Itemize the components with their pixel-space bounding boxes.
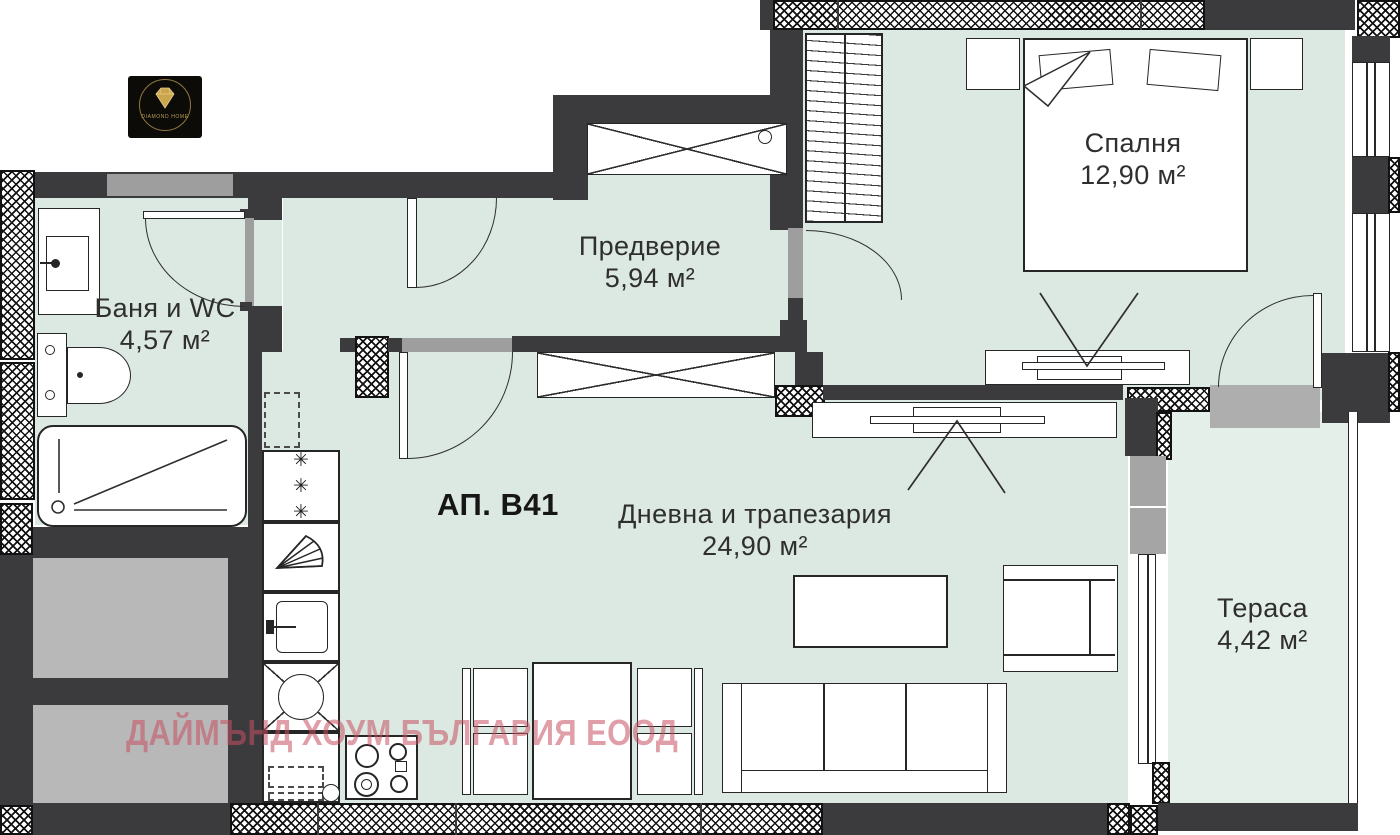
window-glass-line — [1366, 214, 1368, 351]
sofa-armrest-right — [987, 683, 1007, 793]
tv-living-screen — [870, 416, 1045, 424]
freezer-asterisk-icon: ✳ — [293, 475, 309, 498]
sofa-back — [740, 770, 989, 793]
window-glass-line — [1374, 63, 1376, 156]
wardrobe — [805, 33, 883, 223]
toilet-tank-knob-1 — [45, 345, 55, 355]
terrace-slider-panel-2 — [1130, 508, 1166, 554]
hatch-column-hall — [355, 336, 389, 398]
hatch-left-3 — [0, 503, 33, 555]
toilet-drain — [77, 372, 83, 378]
wall-bedroom-left — [770, 0, 803, 230]
hatch-bottom-separator-1 — [317, 803, 319, 835]
living-door-opening — [402, 338, 514, 352]
burner-mark — [395, 761, 407, 772]
bedroom-door-opening — [788, 228, 803, 300]
sofa-cushion-divider — [823, 684, 825, 771]
wall-bottom-living — [823, 803, 1107, 835]
shaft-1 — [33, 558, 228, 678]
wall-terrace-bottom — [1158, 803, 1358, 831]
sofa-armrest-left — [722, 683, 742, 793]
hatch-bottom-separator-3 — [700, 803, 702, 835]
wall-bedroom-living — [823, 385, 1123, 400]
wall-ne-corner — [1352, 36, 1390, 62]
terrace-slider-panel-1 — [1130, 456, 1166, 506]
counter-dashed-2 — [268, 792, 324, 801]
hatch-top-separator-1 — [837, 0, 839, 30]
wall-terrace-divider — [1125, 398, 1158, 456]
kitchen-freezer-unit: ✳ ✳ ✳ — [262, 450, 340, 522]
hatch-bottom-small — [1107, 803, 1130, 835]
room-name: Баня и WC — [55, 292, 275, 324]
terrace-door-leaf — [1313, 293, 1322, 388]
wall-top-right — [1205, 0, 1355, 30]
wall-hall-bottom-a — [340, 338, 356, 352]
wardrobe-divider — [844, 35, 846, 221]
brand-logo: DIAMOND HOME — [128, 76, 202, 138]
wall-bath-right-top — [248, 198, 282, 220]
floor-plan: ✳ ✳ ✳ — [0, 0, 1400, 835]
counter-dashed-1 — [268, 766, 324, 788]
hood-fan-icon — [264, 524, 338, 590]
room-name: Тераса — [1165, 592, 1360, 624]
apartment-id-label: АП. В41 — [437, 487, 559, 523]
wall-junction-nub — [780, 320, 807, 352]
coffee-table — [793, 575, 948, 648]
bathroom-label: Баня и WC 4,57 м² — [55, 292, 275, 357]
counter-corner-circle — [322, 784, 340, 802]
logo-brand-text: DIAMOND HOME — [128, 114, 202, 120]
hatch-terrace-sw — [1130, 805, 1158, 835]
kitchen-sink-unit — [262, 592, 340, 662]
armchair-back — [1004, 579, 1115, 581]
vanity-faucet-stub — [40, 262, 54, 264]
room-area: 12,90 м² — [1023, 159, 1243, 191]
window-glass-line — [1374, 214, 1376, 351]
room-area: 4,57 м² — [55, 324, 275, 356]
kitchen-faucet-spout — [272, 626, 296, 628]
pillow-left — [1039, 49, 1114, 91]
armchair-front — [1004, 654, 1115, 656]
terrace-window — [1138, 554, 1156, 764]
hatch-terrace-bottom — [1152, 762, 1170, 804]
hatch-right-pillar-2 — [1388, 352, 1400, 412]
hatch-ne-corner — [1357, 0, 1400, 38]
room-name: Дневна и трапезария — [590, 498, 920, 530]
wall-bottom-left — [33, 803, 230, 835]
room-area: 4,42 м² — [1165, 624, 1360, 656]
bedroom-window-2 — [1352, 213, 1390, 352]
bathtub-details — [39, 427, 245, 525]
room-area: 24,90 м² — [590, 530, 920, 562]
nightstand-right — [1250, 38, 1303, 90]
freezer-asterisk-icon: ✳ — [293, 501, 309, 524]
living-closet — [537, 352, 775, 398]
hatch-top-separator-2 — [1140, 0, 1142, 30]
pillow-right — [1147, 49, 1222, 91]
tv-bedroom-screen — [1022, 362, 1165, 370]
watermark-text: ДАЙМЪНД ХОУМ БЪЛГАРИЯ ЕООД — [126, 712, 678, 754]
living-dining-label: Дневна и трапезария 24,90 м² — [590, 498, 920, 563]
window-glass-line — [1366, 63, 1368, 156]
kitchen-hood-unit — [262, 522, 340, 592]
terrace-label: Тераса 4,42 м² — [1165, 592, 1360, 657]
wall-junction-small — [795, 352, 823, 387]
chair-strip-right — [694, 668, 703, 795]
hatch-terrace-top — [1156, 412, 1172, 460]
wall-top-left-gray-segment — [107, 174, 233, 196]
freezer-asterisk-icon: ✳ — [293, 449, 309, 472]
window-glass-line — [1147, 555, 1149, 763]
armchair-armrest-line — [1089, 579, 1091, 655]
sofa-cushions — [740, 683, 989, 772]
hatch-left-2 — [0, 362, 35, 500]
armchair — [1003, 565, 1118, 672]
room-name: Предверие — [540, 230, 760, 262]
fridge-dashed-outline — [264, 392, 300, 448]
hall-closet — [587, 123, 787, 175]
wall-top-nub — [760, 0, 773, 30]
bedroom-label: Спалня 12,90 м² — [1023, 127, 1243, 192]
room-name: Спалня — [1023, 127, 1243, 159]
sofa-cushion-divider — [905, 684, 907, 771]
burner-bottom-left-inner — [361, 779, 372, 790]
bathtub — [37, 425, 247, 527]
burner-bottom-right — [390, 775, 408, 793]
wall-hall-top — [553, 95, 790, 123]
room-area: 5,94 м² — [540, 262, 760, 294]
entry-hall-label: Предверие 5,94 м² — [540, 230, 760, 295]
nightstand-left — [966, 38, 1020, 90]
hatch-bottom-separator-2 — [455, 803, 457, 835]
hatch-right-pillar-1 — [1388, 157, 1400, 213]
hatch-left-1 — [0, 170, 35, 360]
wall-right-pillar-1 — [1352, 157, 1390, 213]
hall-closet-knob — [758, 130, 772, 144]
toilet-tank-knob-2 — [45, 390, 55, 400]
wall-hall-bottom-c — [512, 336, 780, 352]
hatch-sw-corner — [0, 805, 33, 835]
bedroom-window-1 — [1352, 62, 1390, 157]
terrace-threshold — [1210, 385, 1320, 428]
diamond-icon — [152, 86, 178, 110]
